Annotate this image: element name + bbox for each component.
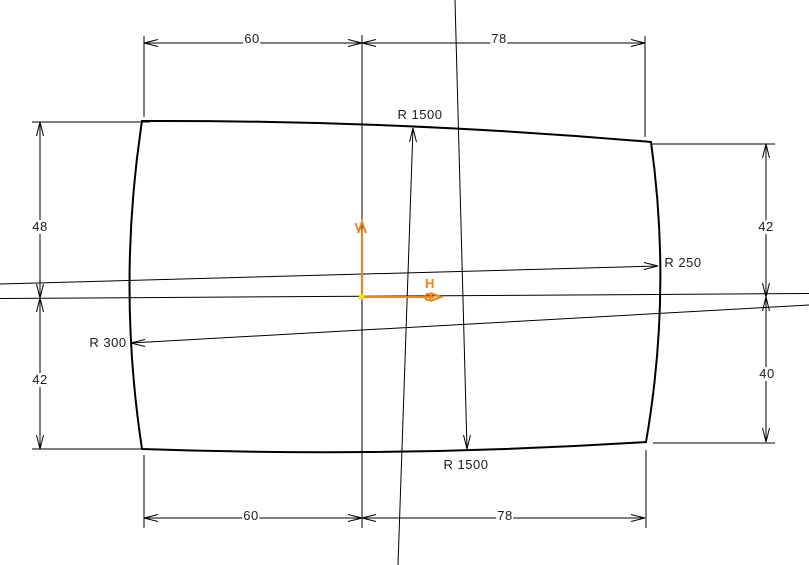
leader-r300 (131, 305, 809, 343)
radius-label-left[interactable]: R 300 (88, 336, 127, 350)
cad-sketch-viewport: 60 78 60 78 48 42 42 40 R 1500 R 1500 R … (0, 0, 809, 565)
leader-r250 (0, 266, 658, 284)
dim-top-width-right[interactable]: 78 (490, 32, 507, 46)
profile-outline[interactable] (130, 121, 661, 452)
radius-leader-lines (0, 0, 809, 565)
sketch-geometry (0, 0, 809, 565)
dim-left-height-upper[interactable]: 48 (31, 220, 48, 234)
dim-bottom-width-left[interactable]: 60 (242, 509, 259, 523)
v-axis-label: V (354, 221, 363, 235)
dim-left-height-lower[interactable]: 42 (31, 373, 48, 387)
leader-r1500-bottom (455, 0, 467, 449)
origin-point (359, 295, 364, 300)
radius-label-bottom[interactable]: R 1500 (443, 458, 490, 472)
h-axis-label: H (425, 277, 435, 291)
radius-label-right[interactable]: R 250 (663, 256, 702, 270)
leader-r1500-top (398, 128, 413, 565)
dim-right-height-upper[interactable]: 42 (757, 220, 774, 234)
radius-label-top[interactable]: R 1500 (397, 108, 444, 122)
dim-top-width-left[interactable]: 60 (243, 32, 260, 46)
dim-bottom-width-right[interactable]: 78 (496, 509, 513, 523)
dim-right-height-lower[interactable]: 40 (758, 367, 775, 381)
